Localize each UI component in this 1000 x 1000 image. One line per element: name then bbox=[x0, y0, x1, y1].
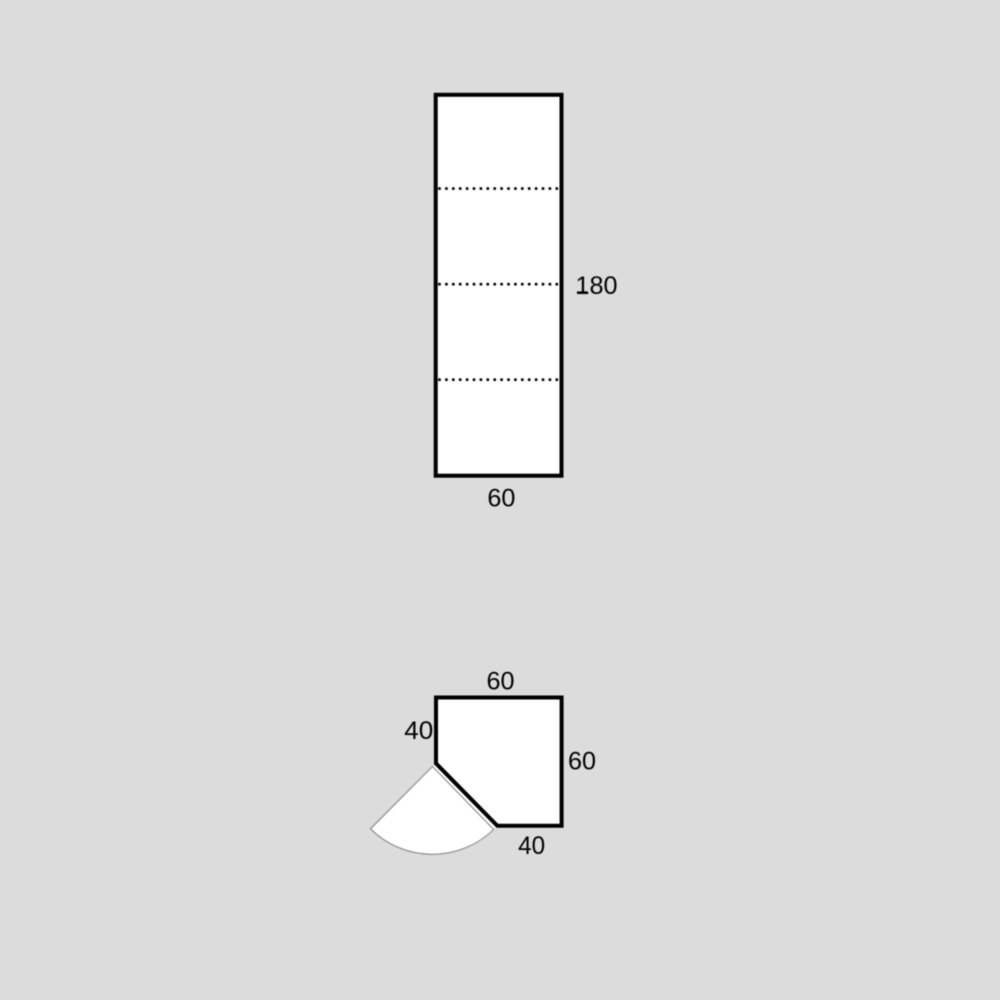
svg-text:40: 40 bbox=[404, 717, 433, 745]
svg-text:60: 60 bbox=[487, 668, 515, 696]
svg-text:60: 60 bbox=[568, 748, 596, 776]
svg-text:60: 60 bbox=[487, 485, 515, 513]
svg-text:180: 180 bbox=[576, 272, 618, 300]
svg-text:40: 40 bbox=[518, 832, 545, 860]
